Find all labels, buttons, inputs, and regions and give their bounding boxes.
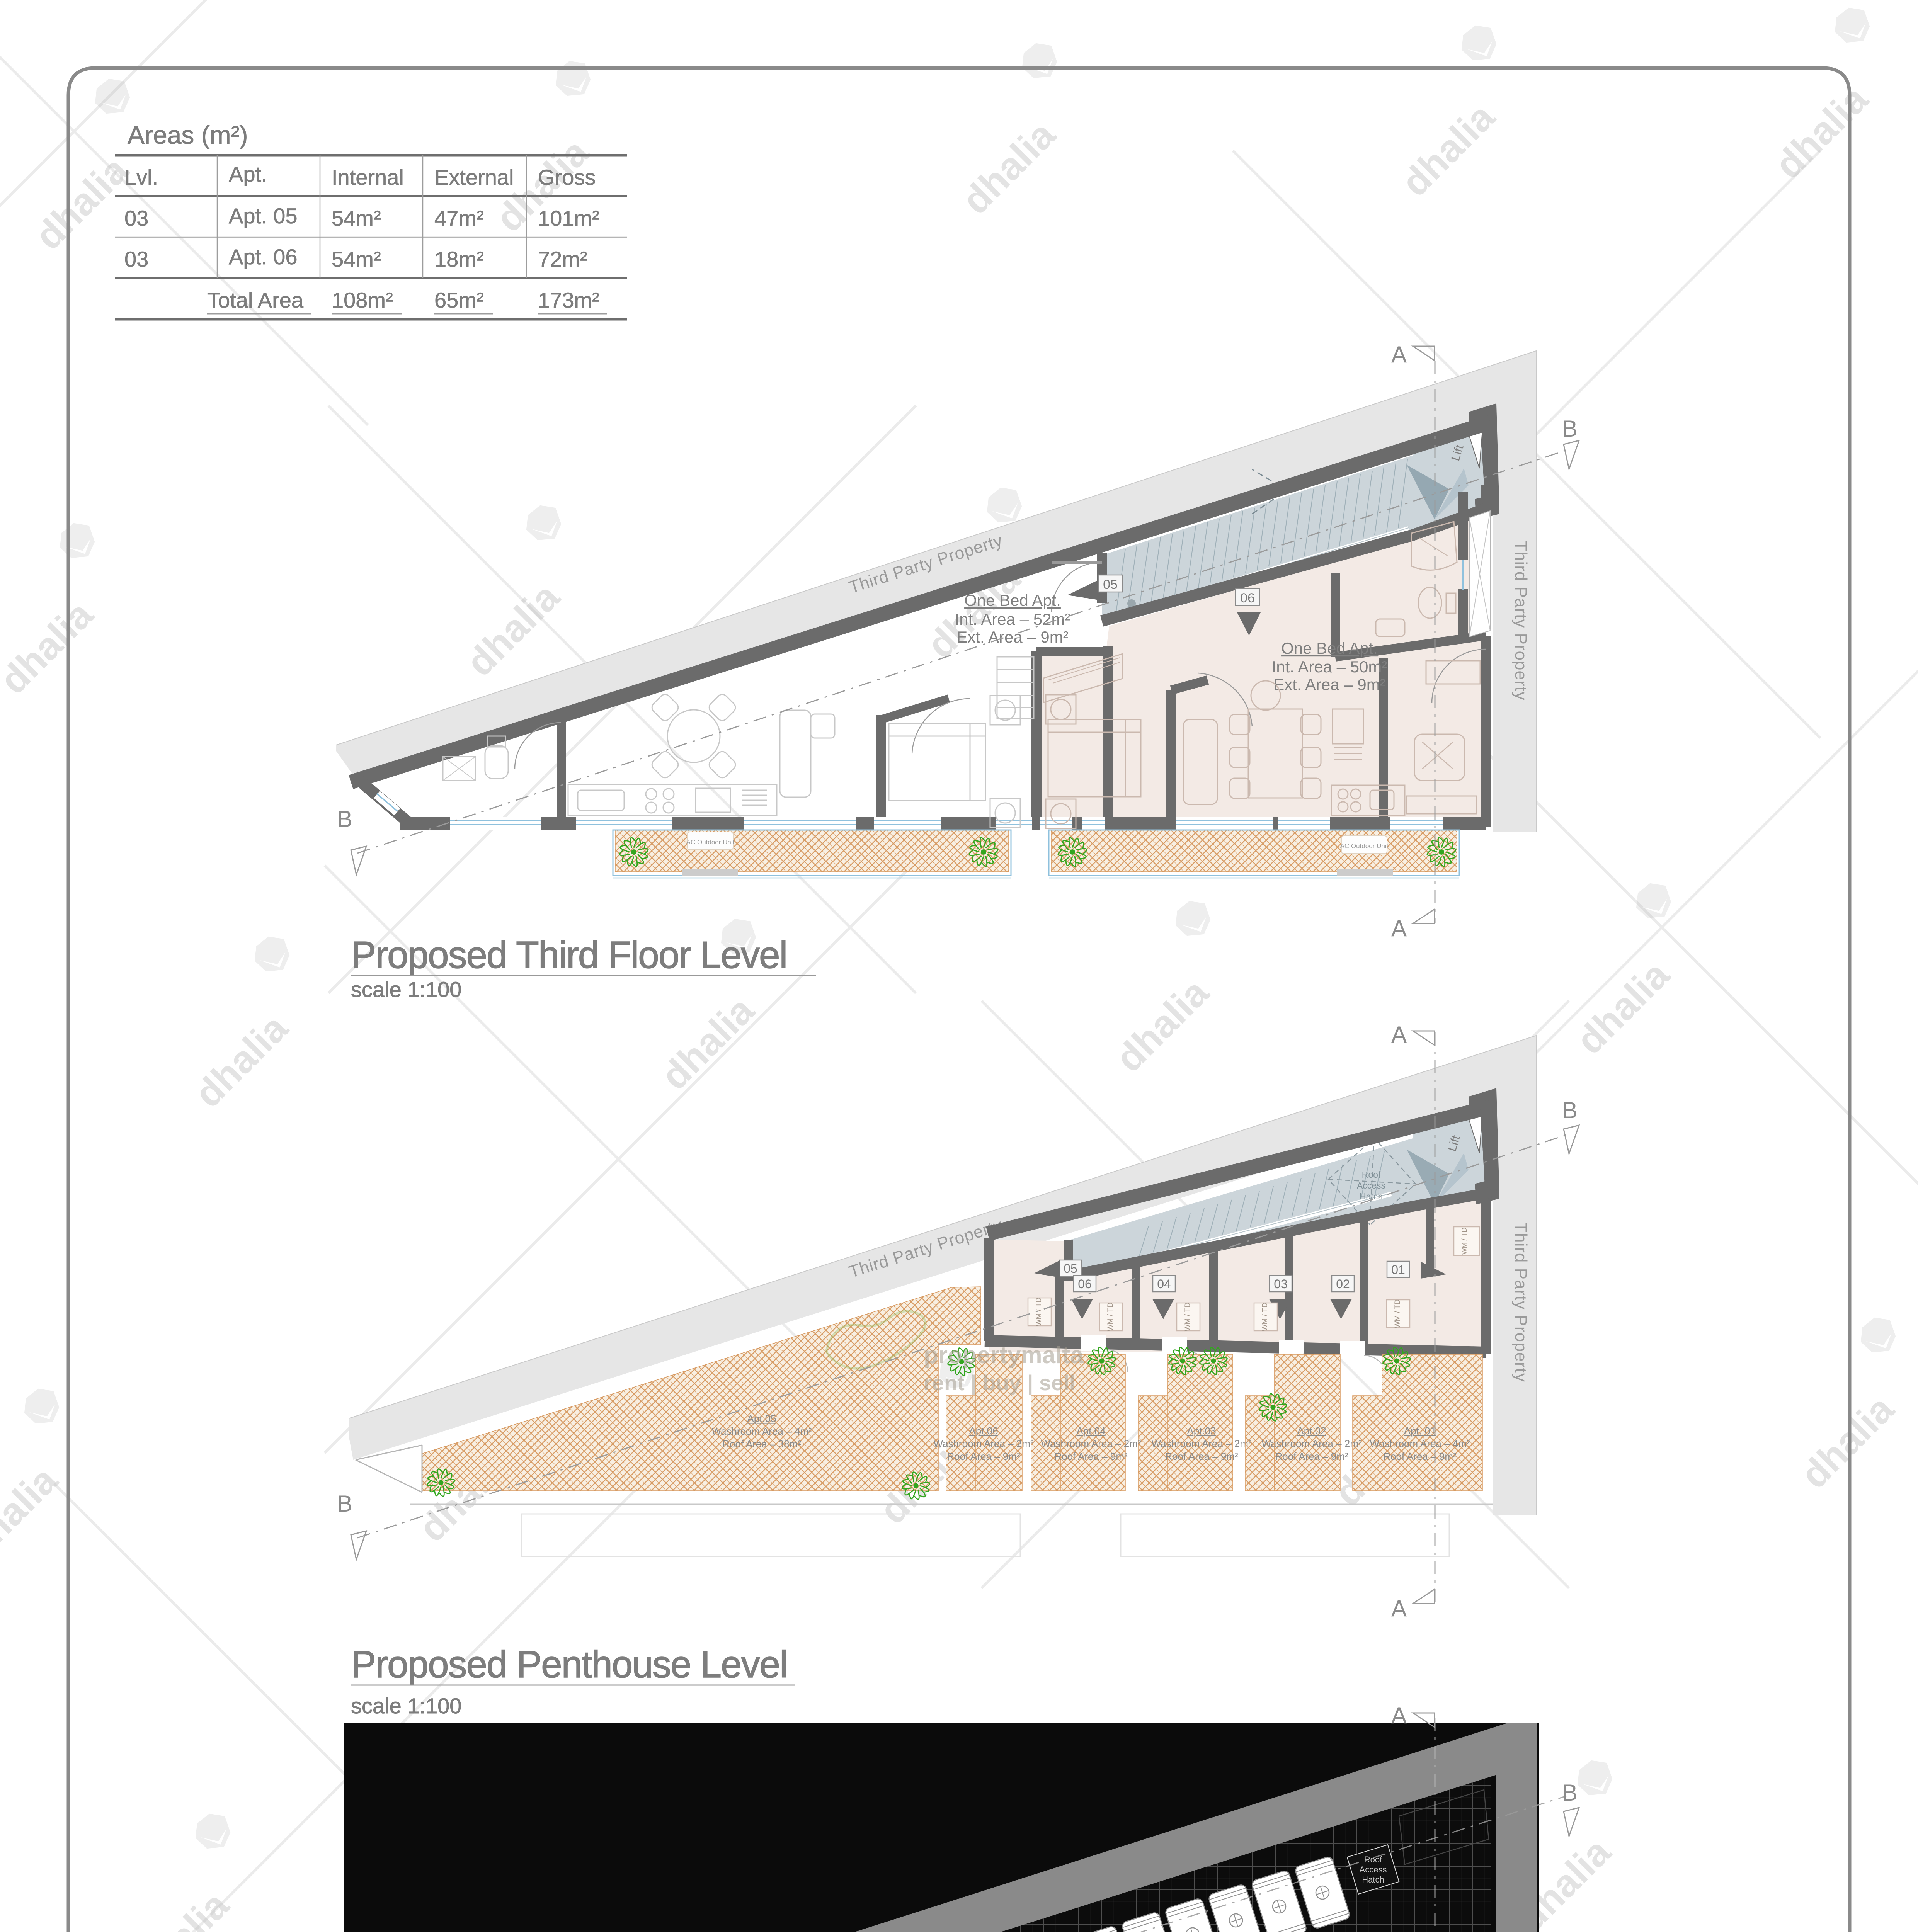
svg-text:Roof Area – 9m²: Roof Area – 9m² bbox=[1275, 1451, 1348, 1462]
svg-text:propertymalta: propertymalta bbox=[924, 1342, 1084, 1369]
svg-text:B: B bbox=[1562, 416, 1578, 442]
svg-text:dhalia: dhalia bbox=[1107, 970, 1217, 1080]
svg-text:Internal: Internal bbox=[332, 165, 404, 189]
svg-text:47m²: 47m² bbox=[434, 206, 484, 230]
svg-text:dhalia: dhalia bbox=[1767, 77, 1877, 187]
svg-text:dhalia: dhalia bbox=[954, 112, 1064, 223]
svg-text:03: 03 bbox=[1274, 1277, 1288, 1291]
svg-text:dhalia: dhalia bbox=[186, 1006, 296, 1116]
svg-text:rent | buy | sell: rent | buy | sell bbox=[924, 1371, 1075, 1395]
svg-text:Apt.02: Apt.02 bbox=[1297, 1425, 1326, 1437]
svg-text:WM / TD: WM / TD bbox=[1394, 1299, 1402, 1328]
svg-text:Access: Access bbox=[1360, 1865, 1387, 1874]
svg-text:18m²: 18m² bbox=[434, 247, 484, 271]
svg-text:Roof Area – 9m²: Roof Area – 9m² bbox=[1383, 1451, 1457, 1462]
svg-text:Roof Area – 9m²: Roof Area – 9m² bbox=[1165, 1451, 1238, 1462]
svg-text:05: 05 bbox=[1064, 1262, 1077, 1276]
svg-text:Total Area: Total Area bbox=[207, 288, 304, 312]
svg-text:One Bed Apt.: One Bed Apt. bbox=[1281, 639, 1378, 657]
svg-text:scale 1:100: scale 1:100 bbox=[351, 1694, 461, 1718]
svg-text:A: A bbox=[1391, 342, 1407, 367]
svg-text:A: A bbox=[1391, 1022, 1407, 1048]
svg-text:A: A bbox=[1391, 1595, 1407, 1621]
svg-text:03: 03 bbox=[124, 206, 148, 230]
svg-text:AC Outdoor Unit: AC Outdoor Unit bbox=[1340, 842, 1389, 850]
svg-text:Apt.06: Apt.06 bbox=[969, 1425, 998, 1437]
svg-text:Roof: Roof bbox=[1362, 1170, 1381, 1180]
svg-text:dhalia: dhalia bbox=[1792, 1387, 1903, 1497]
svg-text:Washroom Area – 2m²: Washroom Area – 2m² bbox=[1041, 1438, 1141, 1449]
svg-text:Washroom Area – 2m²: Washroom Area – 2m² bbox=[933, 1438, 1033, 1449]
svg-text:Apt.: Apt. bbox=[229, 162, 267, 186]
svg-text:Proposed Third Floor Level: Proposed Third Floor Level bbox=[351, 934, 787, 976]
svg-text:External: External bbox=[434, 165, 514, 189]
svg-text:Apt.05: Apt.05 bbox=[747, 1413, 776, 1424]
svg-text:Apt. 05: Apt. 05 bbox=[229, 204, 297, 228]
svg-text:Washroom Area – 2m²: Washroom Area – 2m² bbox=[1261, 1438, 1361, 1449]
svg-text:Areas (m²): Areas (m²) bbox=[128, 121, 248, 149]
svg-text:WM / TD: WM / TD bbox=[1106, 1303, 1115, 1332]
svg-text:Third Party Property: Third Party Property bbox=[1511, 1222, 1530, 1382]
svg-text:Int. Area – 50m²: Int. Area – 50m² bbox=[1272, 658, 1387, 676]
svg-text:One Bed Apt.: One Bed Apt. bbox=[964, 591, 1061, 609]
svg-text:Hatch: Hatch bbox=[1362, 1875, 1384, 1884]
svg-text:54m²: 54m² bbox=[332, 247, 381, 271]
svg-text:108m²: 108m² bbox=[332, 288, 393, 312]
svg-text:AC Outdoor Unit: AC Outdoor Unit bbox=[686, 838, 735, 846]
svg-text:06: 06 bbox=[1240, 591, 1255, 605]
svg-text:A: A bbox=[1391, 1702, 1407, 1728]
svg-text:173m²: 173m² bbox=[538, 288, 599, 312]
svg-text:Washroom Area – 4m²: Washroom Area – 4m² bbox=[711, 1425, 812, 1437]
svg-text:Apt.04: Apt.04 bbox=[1076, 1425, 1105, 1437]
svg-text:Apt.03: Apt.03 bbox=[1187, 1425, 1216, 1437]
svg-text:Apt. 06: Apt. 06 bbox=[229, 245, 297, 269]
svg-text:WM / TD: WM / TD bbox=[1460, 1228, 1468, 1255]
svg-text:01: 01 bbox=[1391, 1263, 1405, 1277]
svg-text:Washroom Area – 4m²: Washroom Area – 4m² bbox=[1370, 1438, 1470, 1449]
svg-text:dhalia: dhalia bbox=[27, 148, 137, 258]
svg-text:101m²: 101m² bbox=[538, 206, 599, 230]
svg-text:Apt. 01: Apt. 01 bbox=[1404, 1425, 1436, 1437]
svg-text:54m²: 54m² bbox=[332, 206, 381, 230]
svg-text:72m²: 72m² bbox=[538, 247, 587, 271]
svg-text:WM / TD: WM / TD bbox=[1261, 1303, 1269, 1332]
svg-text:dhalia: dhalia bbox=[0, 592, 102, 702]
svg-text:Gross: Gross bbox=[538, 165, 596, 189]
svg-text:Roof Area – 9m²: Roof Area – 9m² bbox=[947, 1451, 1020, 1462]
svg-text:02: 02 bbox=[1336, 1277, 1350, 1291]
svg-text:dhalia: dhalia bbox=[1568, 952, 1678, 1063]
svg-text:Ext. Area – 9m²: Ext. Area – 9m² bbox=[1273, 675, 1385, 694]
svg-text:A: A bbox=[1391, 915, 1407, 941]
svg-text:Ext. Area – 9m²: Ext. Area – 9m² bbox=[956, 628, 1068, 646]
svg-text:dhalia: dhalia bbox=[653, 988, 763, 1098]
svg-text:dhalia: dhalia bbox=[1393, 95, 1503, 205]
svg-text:Roof Area – 9m²: Roof Area – 9m² bbox=[1054, 1451, 1128, 1462]
svg-text:Int. Area – 52m²: Int. Area – 52m² bbox=[955, 610, 1070, 628]
svg-text:04: 04 bbox=[1157, 1277, 1171, 1291]
svg-text:B: B bbox=[1562, 1097, 1578, 1123]
svg-text:Washroom Area – 2m²: Washroom Area – 2m² bbox=[1151, 1438, 1251, 1449]
svg-text:WM / TD: WM / TD bbox=[1184, 1303, 1192, 1332]
svg-text:B: B bbox=[337, 806, 352, 832]
svg-text:dhalia: dhalia bbox=[0, 1458, 66, 1568]
svg-text:Proposed Penthouse Level: Proposed Penthouse Level bbox=[351, 1643, 787, 1685]
svg-text:scale 1:100: scale 1:100 bbox=[351, 977, 461, 1002]
svg-text:05: 05 bbox=[1103, 577, 1118, 592]
svg-text:dhalia: dhalia bbox=[127, 1883, 237, 1932]
svg-text:B: B bbox=[337, 1491, 352, 1517]
svg-text:B: B bbox=[1562, 1780, 1578, 1806]
svg-text:Lvl.: Lvl. bbox=[124, 165, 158, 189]
svg-text:Access: Access bbox=[1357, 1180, 1385, 1190]
svg-text:Roof Area – 38m²: Roof Area – 38m² bbox=[722, 1438, 801, 1450]
svg-text:06: 06 bbox=[1078, 1277, 1092, 1291]
svg-text:65m²: 65m² bbox=[434, 288, 484, 312]
svg-text:03: 03 bbox=[124, 247, 148, 271]
